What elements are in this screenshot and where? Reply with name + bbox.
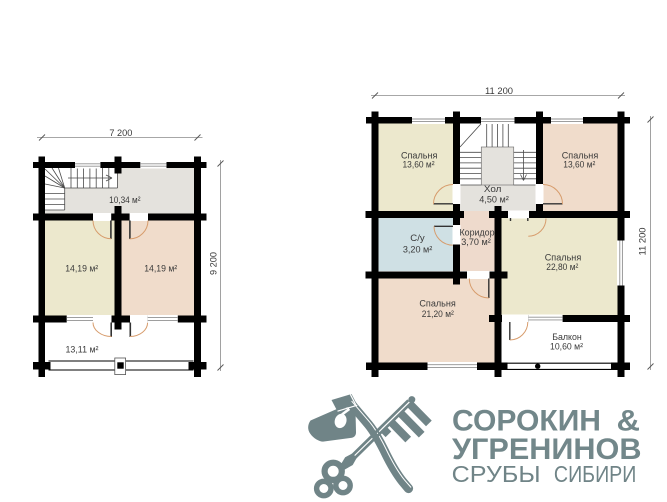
svg-text:7 200: 7 200	[109, 128, 132, 138]
svg-text:СРУБЫ: СРУБЫ	[452, 461, 541, 487]
svg-text:4,50 м²: 4,50 м²	[479, 194, 509, 205]
svg-text:11 200: 11 200	[638, 228, 648, 256]
svg-text:13,60 м²: 13,60 м²	[563, 160, 596, 171]
svg-text:10,34 м²: 10,34 м²	[109, 195, 141, 206]
svg-text:3,70 м²: 3,70 м²	[461, 237, 491, 248]
svg-text:9 200: 9 200	[209, 252, 219, 275]
svg-text:СИБИРИ: СИБИРИ	[554, 461, 637, 487]
svg-text:14,19 м²: 14,19 м²	[144, 264, 178, 275]
svg-text:3,20 м²: 3,20 м²	[403, 245, 433, 256]
svg-text:10,60 м²: 10,60 м²	[550, 341, 584, 352]
svg-text:С/у: С/у	[410, 233, 425, 244]
svg-text:11 200: 11 200	[485, 86, 513, 96]
svg-text:13,60 м²: 13,60 м²	[403, 160, 436, 171]
svg-text:13,11 м²: 13,11 м²	[66, 345, 100, 356]
svg-text:22,80 м²: 22,80 м²	[546, 262, 579, 273]
svg-text:14,19 м²: 14,19 м²	[65, 264, 99, 275]
svg-text:21,20 м²: 21,20 м²	[422, 309, 455, 320]
